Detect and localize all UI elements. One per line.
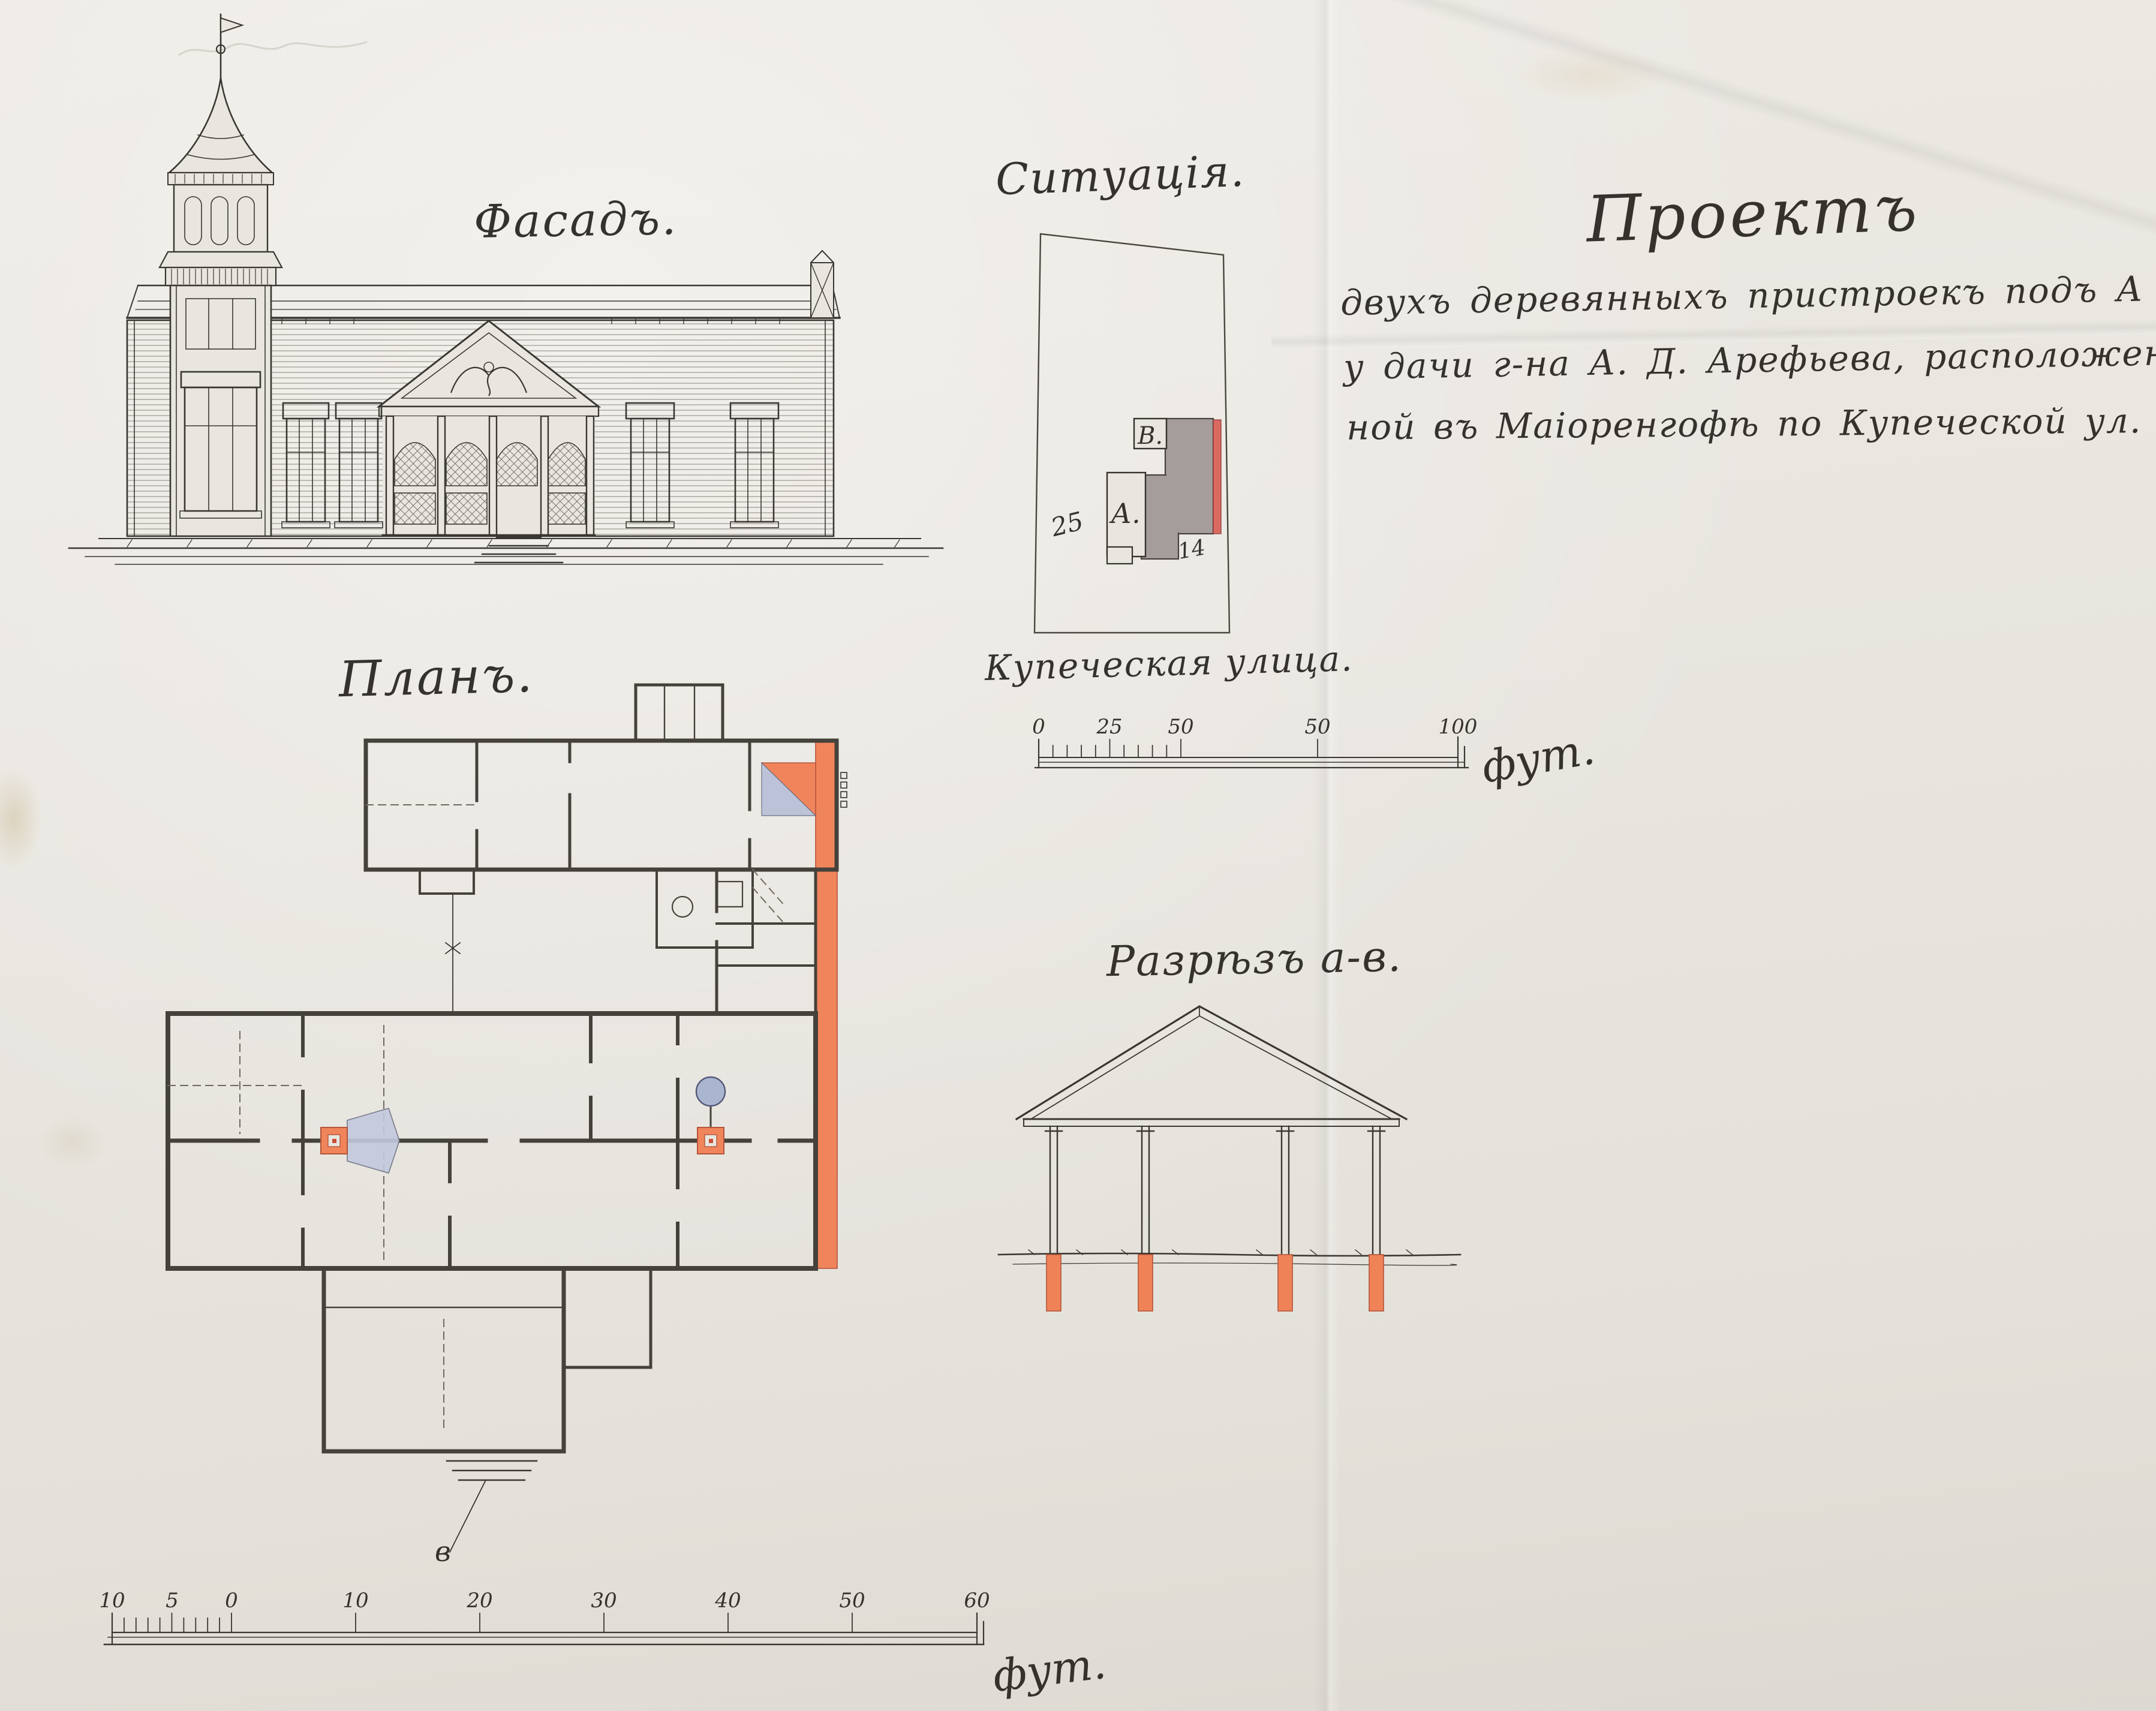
scale-bottom-label: 0 <box>225 1589 238 1613</box>
section-columns <box>1045 1126 1385 1255</box>
section-roof <box>1017 1006 1406 1119</box>
plan-kitchen <box>657 870 786 948</box>
scale-bottom-label: 50 <box>839 1589 865 1613</box>
scale-bottom-label: 60 <box>964 1589 990 1613</box>
plan-stove-right <box>696 1077 725 1154</box>
stain-left-edge <box>0 768 42 870</box>
drawing-sheet: В. А. 25 14 <box>0 0 2156 1711</box>
facade-drawing <box>48 6 948 588</box>
section-beam <box>1024 1119 1399 1126</box>
tower-body <box>170 285 271 536</box>
scale-top-label: 50 <box>1168 715 1193 739</box>
plan-bottom-wing <box>324 1268 651 1451</box>
tower <box>160 14 282 536</box>
porch-steps <box>475 537 563 563</box>
dimension-left: 25 <box>1048 506 1087 543</box>
scale-top-label: 100 <box>1439 715 1478 739</box>
section-ground <box>999 1250 1460 1265</box>
scale-bottom-label: 30 <box>591 1589 617 1613</box>
scale-bottom-label: 40 <box>714 1589 741 1613</box>
scale-top-label: 50 <box>1304 715 1330 739</box>
new-addition-strip <box>1213 420 1221 534</box>
project-line-1: двухъ деревянныхъ пристроекъ подъ А и В <box>1340 267 2156 323</box>
tower-balcony <box>166 267 276 285</box>
scale-top-label: 25 <box>1096 715 1122 739</box>
tower-belvedere <box>174 185 267 252</box>
plan-connector <box>446 894 460 1012</box>
scale-bottom-label: 20 <box>466 1589 492 1613</box>
plan-right-rooms <box>717 870 816 1014</box>
facade-title: Фасадъ. <box>473 191 678 248</box>
plan-entrance-marker: в <box>435 1535 451 1568</box>
plan-strip-marks <box>841 772 847 807</box>
building-a-label: А. <box>1109 497 1140 530</box>
stain-top-right <box>1511 48 1667 102</box>
tower-skirt <box>160 252 282 267</box>
building-b: В. <box>1134 419 1166 450</box>
dimension-right: 14 <box>1176 536 1207 564</box>
plan-corner-detail <box>762 763 816 816</box>
ground-lines <box>69 539 943 564</box>
scale-bottom-label: 5 <box>166 1589 179 1613</box>
plan-new-addition-strip <box>816 741 837 1268</box>
situation-drawing: В. А. 25 14 <box>993 216 1268 660</box>
project-heading: Проектъ <box>1585 171 1921 256</box>
scale-top-label: 0 <box>1032 715 1045 739</box>
plan-drawing <box>150 672 870 1607</box>
scale-bottom-label: 10 <box>99 1589 125 1613</box>
project-line-2: у дачи г-на А. Д. Арефьева, расположен- <box>1343 332 2156 387</box>
fold-crease-vertical <box>1313 0 1341 1711</box>
project-line-3: ной въ Маіоренгофѣ по Купеческой ул. № 2… <box>1346 399 2156 447</box>
tower-tent-roof <box>169 78 272 173</box>
plan-stove-left <box>321 1108 399 1173</box>
building-a: А. <box>1107 473 1145 564</box>
situation-title: Ситуація. <box>995 146 1246 205</box>
plan-steps <box>447 1461 537 1552</box>
section-drawing <box>993 984 1472 1331</box>
plan-title: Планъ. <box>338 646 535 708</box>
roof-end-ornament <box>811 251 834 318</box>
stain-left-low <box>36 1115 108 1169</box>
building-b-label: В. <box>1137 422 1163 450</box>
section-title: Разрѣзъ а-в. <box>1106 932 1402 987</box>
scale-bottom-label: 10 <box>342 1589 368 1613</box>
